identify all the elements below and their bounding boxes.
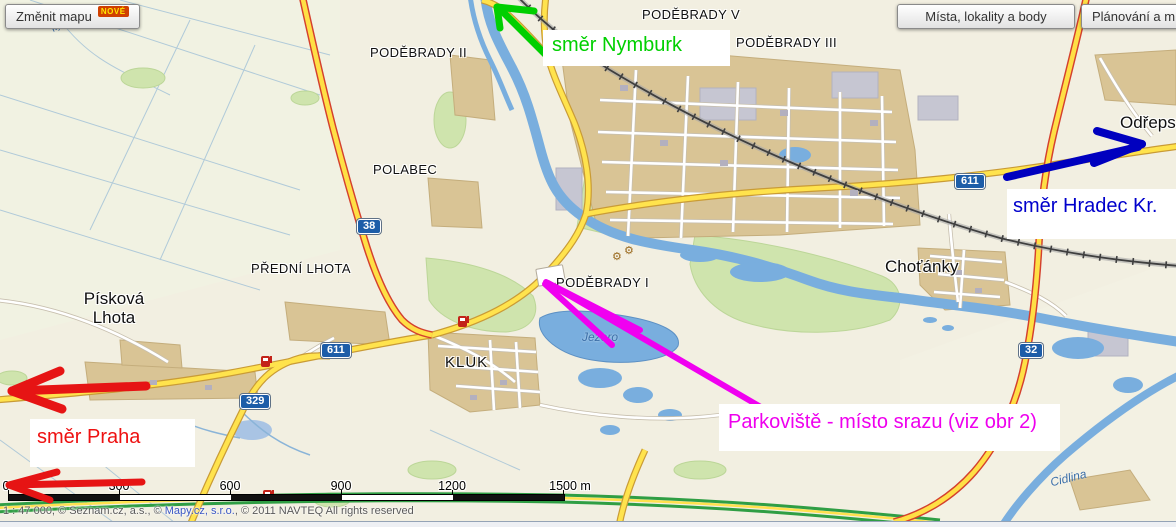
scale-bar: 0 300 600 900 1200 1500 m (0, 479, 660, 503)
planning-label: Plánování a m (1092, 9, 1175, 24)
fuel-station-icon (458, 316, 467, 327)
place-label-podebrady-i: PODĚBRADY I (556, 276, 649, 290)
scale-label-1500m: 1500 m (549, 479, 591, 493)
road-shield-611-west: 611 (321, 343, 351, 358)
place-label-podebrady-v: PODĚBRADY V (642, 8, 740, 22)
fuel-station-icon (261, 356, 270, 367)
place-label-polabec: POLABEC (373, 163, 437, 177)
gear-icon: ⚙ (624, 246, 634, 257)
place-label-chotanky: Choťánky (885, 258, 958, 277)
road-shield-329: 329 (240, 394, 270, 409)
place-label-piskova-lhota: Písková Lhota (58, 290, 170, 327)
annotation-smer-praha: směr Praha (30, 419, 195, 467)
new-badge: NOVÉ (98, 6, 129, 17)
place-label-kluk: KLUK (445, 355, 488, 372)
annotation-smer-hradec: směr Hradec Kr. (1007, 189, 1176, 239)
water-label-jezero: Jezero (582, 330, 618, 344)
piskova-line1: Písková (58, 290, 170, 309)
copyright-line: 1 : 47 000, © Seznam.cz, a.s., © Mapy.cz… (3, 505, 414, 517)
road-shield-38: 38 (357, 219, 381, 234)
window-bottom-edge (0, 521, 1176, 527)
change-map-label: Změnit mapu (16, 9, 92, 24)
place-label-podebrady-ii: PODĚBRADY II (370, 46, 467, 60)
copyright-prefix: 1 : 47 000, © Seznam.cz, a.s., © (3, 505, 165, 517)
planning-button[interactable]: Plánování a m (1081, 4, 1176, 29)
change-map-button[interactable]: Změnit mapu NOVÉ (5, 4, 140, 29)
place-label-predni-lhota: PŘEDNÍ LHOTA (251, 262, 351, 276)
place-label-odreps: Odřeps (1120, 114, 1176, 133)
road-shield-611-east: 611 (955, 174, 985, 189)
copyright-mapycz-link[interactable]: Mapy.cz, s.r.o. (165, 505, 235, 517)
annotation-smer-nymburk: směr Nymburk (543, 30, 730, 66)
place-label-podebrady-iii: PODĚBRADY III (736, 36, 837, 50)
places-localities-label: Místa, lokality a body (925, 9, 1046, 24)
piskova-line2: Lhota (58, 309, 170, 328)
map-viewport: PODĚBRADY V PODĚBRADY III PODĚBRADY II P… (0, 0, 1176, 527)
gear-icon: ⚙ (612, 252, 622, 263)
places-localities-button[interactable]: Místa, lokality a body (897, 4, 1075, 29)
road-shield-32: 32 (1019, 343, 1043, 358)
annotation-parkoviste: Parkoviště - místo srazu (viz obr 2) (719, 404, 1060, 451)
scale-bar-segments (8, 494, 565, 501)
copyright-suffix: , © 2011 NAVTEQ All rights reserved (235, 505, 414, 517)
